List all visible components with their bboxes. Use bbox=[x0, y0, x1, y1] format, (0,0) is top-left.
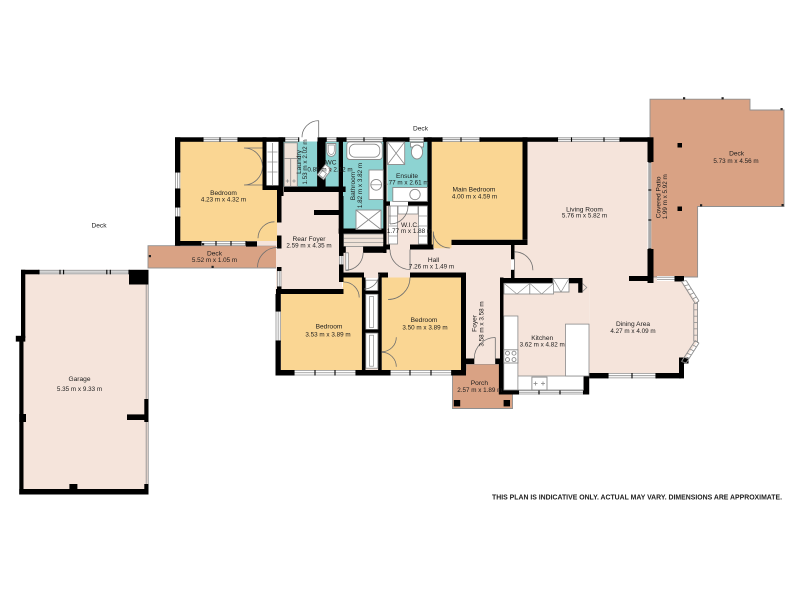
svg-text:2.57 m x 1.89 m: 2.57 m x 1.89 m bbox=[457, 387, 502, 394]
svg-text:2.59 m x 4.35 m: 2.59 m x 4.35 m bbox=[286, 243, 331, 250]
svg-text:5.73 m x 4.56 m: 5.73 m x 4.56 m bbox=[713, 158, 758, 165]
svg-text:1.77 m x 2.61 m: 1.77 m x 2.61 m bbox=[383, 179, 428, 186]
svg-text:1.82 m x 3.82 m: 1.82 m x 3.82 m bbox=[357, 163, 364, 208]
svg-text:3.53 m x 3.89 m: 3.53 m x 3.89 m bbox=[305, 331, 350, 338]
svg-text:5.76 m x 5.82 m: 5.76 m x 5.82 m bbox=[562, 213, 607, 220]
svg-text:4.00 m x 4.59 m: 4.00 m x 4.59 m bbox=[452, 194, 497, 201]
svg-text:Deck: Deck bbox=[413, 126, 429, 133]
svg-text:1.99 m x 5.92 m: 1.99 m x 5.92 m bbox=[662, 174, 669, 219]
svg-text:Main Bedroom: Main Bedroom bbox=[453, 187, 496, 194]
svg-text:5.35 m x 9.33 m: 5.35 m x 9.33 m bbox=[57, 386, 102, 393]
svg-text:Bathroom: Bathroom bbox=[350, 171, 357, 200]
svg-text:3.58 m x 3.58 m: 3.58 m x 3.58 m bbox=[478, 301, 485, 346]
svg-text:Deck: Deck bbox=[91, 223, 107, 230]
svg-text:Garage: Garage bbox=[69, 376, 91, 383]
svg-text:5.52 m x 1.05 m: 5.52 m x 1.05 m bbox=[192, 257, 237, 264]
svg-text:1.53 m x 2.02 m: 1.53 m x 2.02 m bbox=[302, 139, 309, 184]
svg-text:Bedroom: Bedroom bbox=[411, 317, 438, 324]
svg-text:0.85 m x 2.12 m: 0.85 m x 2.12 m bbox=[307, 167, 352, 174]
svg-text:WC: WC bbox=[326, 160, 337, 167]
svg-text:7.26 m x 1.49 m: 7.26 m x 1.49 m bbox=[409, 264, 454, 271]
svg-text:3.50 m x 3.89 m: 3.50 m x 3.89 m bbox=[402, 325, 447, 332]
svg-text:Bedroom: Bedroom bbox=[316, 324, 343, 331]
svg-text:3.62 m x 4.82 m: 3.62 m x 4.82 m bbox=[520, 342, 565, 349]
svg-text:4.23 m x 4.32 m: 4.23 m x 4.32 m bbox=[201, 197, 246, 204]
svg-text:THIS PLAN IS INDICATIVE ONLY.: THIS PLAN IS INDICATIVE ONLY. ACTUAL MAY… bbox=[492, 495, 782, 502]
svg-text:Porch: Porch bbox=[471, 380, 489, 387]
svg-text:1.77 m x 1.88 m: 1.77 m x 1.88 m bbox=[387, 228, 432, 235]
svg-text:Deck: Deck bbox=[729, 150, 745, 157]
svg-text:4.27 m x 4.09 m: 4.27 m x 4.09 m bbox=[610, 328, 655, 335]
